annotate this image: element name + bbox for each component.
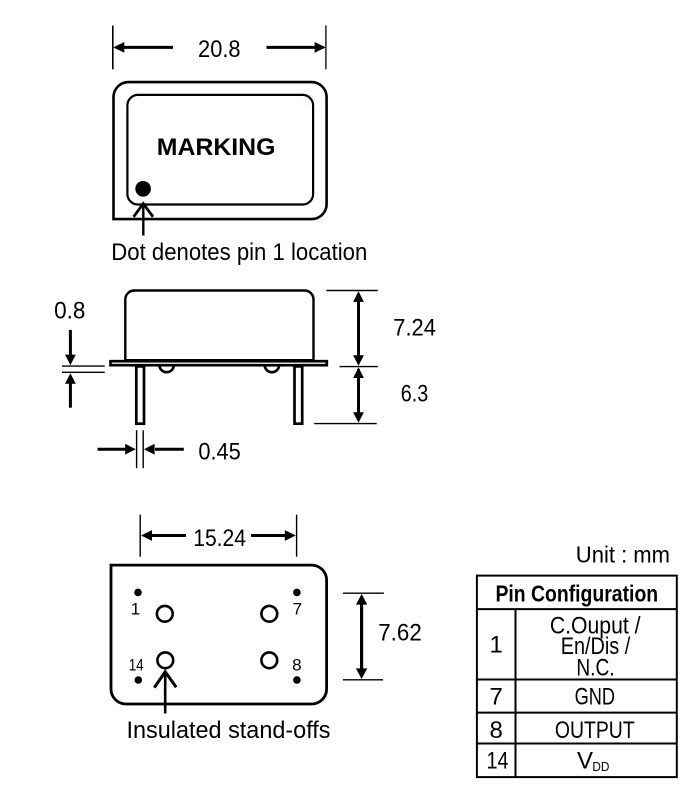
- svg-text:8: 8: [292, 655, 301, 674]
- svg-text:1: 1: [490, 632, 503, 659]
- svg-text:7: 7: [293, 600, 302, 619]
- svg-text:Pin Configuration: Pin Configuration: [495, 580, 658, 606]
- svg-text:Insulated stand-offs: Insulated stand-offs: [127, 717, 331, 744]
- svg-text:N.C.: N.C.: [576, 654, 614, 681]
- svg-text:8: 8: [490, 717, 503, 744]
- svg-text:7: 7: [490, 683, 503, 710]
- svg-text:Unit : mm: Unit : mm: [576, 542, 670, 568]
- svg-text:7.24: 7.24: [393, 314, 436, 341]
- svg-text:7.62: 7.62: [378, 619, 422, 646]
- svg-text:OUTPUT: OUTPUT: [555, 717, 635, 744]
- svg-text:0.45: 0.45: [198, 439, 240, 466]
- svg-text:V: V: [577, 747, 593, 774]
- svg-text:20.8: 20.8: [198, 36, 241, 63]
- svg-text:GND: GND: [575, 684, 615, 711]
- svg-text:15.24: 15.24: [193, 525, 246, 552]
- svg-text:14: 14: [129, 655, 144, 674]
- svg-text:Dot denotes pin 1 location: Dot denotes pin 1 location: [111, 239, 367, 266]
- svg-text:14: 14: [487, 748, 509, 775]
- svg-text:1: 1: [131, 600, 140, 619]
- svg-text:MARKING: MARKING: [157, 134, 276, 161]
- svg-text:DD: DD: [592, 760, 609, 774]
- svg-text:6.3: 6.3: [401, 381, 428, 408]
- svg-text:0.8: 0.8: [54, 298, 85, 325]
